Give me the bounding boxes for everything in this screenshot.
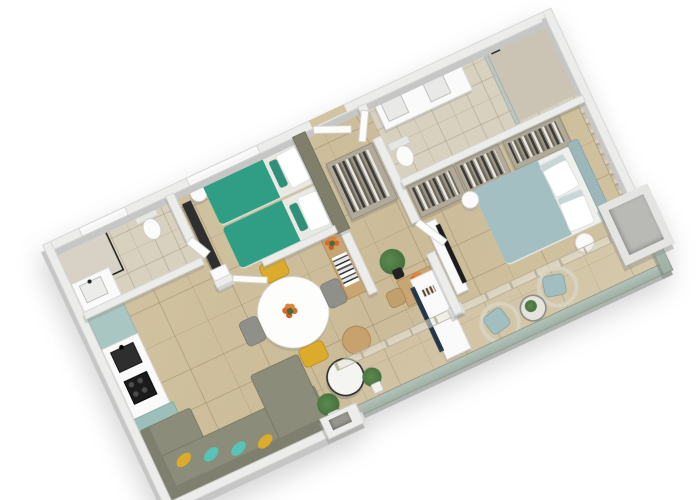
balcony-chair-2-cushion	[541, 273, 567, 298]
floor-plan-scene	[0, 0, 700, 500]
entry-door-panel	[313, 125, 352, 134]
apartment-plan	[42, 8, 674, 500]
